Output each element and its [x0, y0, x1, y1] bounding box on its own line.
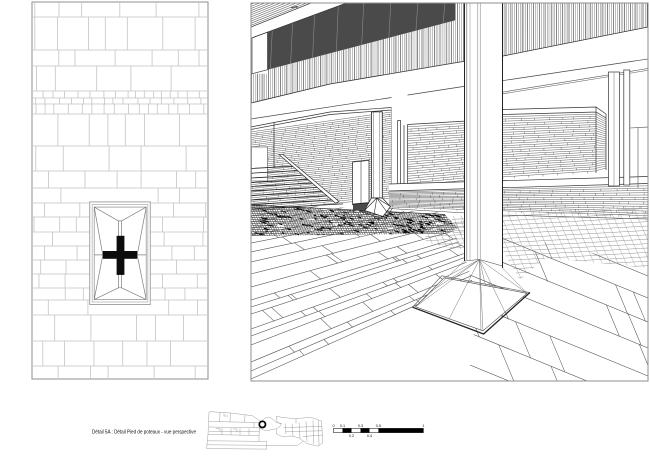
svg-text:1: 1 — [422, 424, 424, 428]
svg-text:0: 0 — [332, 424, 334, 428]
svg-text:0.3: 0.3 — [358, 424, 363, 428]
svg-text:Détail 5A : Détail Pied de pot: Détail 5A : Détail Pied de poteaux - vue… — [92, 430, 196, 436]
svg-text:0.4: 0.4 — [367, 434, 372, 438]
svg-text:0.5: 0.5 — [376, 424, 381, 428]
svg-text:0.2: 0.2 — [349, 434, 354, 438]
svg-text:0.1: 0.1 — [340, 424, 345, 428]
